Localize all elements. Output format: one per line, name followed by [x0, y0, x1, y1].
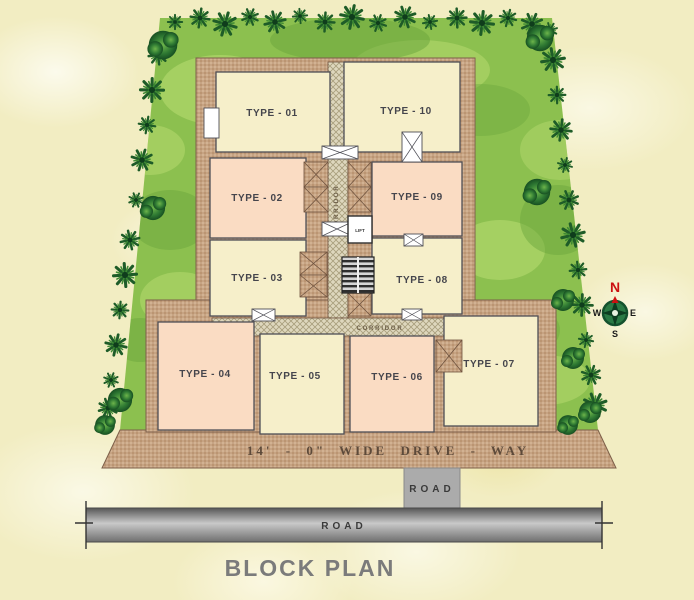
vent-icon — [402, 309, 422, 320]
road-stub-label: ROAD — [409, 484, 454, 495]
unit-type-08: TYPE - 08 — [372, 238, 462, 314]
shaft-icon — [300, 275, 327, 297]
vent-icon — [252, 309, 275, 321]
compass-hub — [612, 310, 618, 316]
palm-tree-icon — [292, 8, 308, 24]
unit-type-09: TYPE - 09 — [372, 162, 462, 236]
horizontal-corridor-label: CORRIDOR — [356, 326, 403, 332]
compass-east-label: E — [630, 308, 636, 318]
compass-rose: N W E S — [593, 279, 636, 339]
unit-type-04: TYPE - 04 — [158, 322, 254, 430]
vent-icon — [404, 234, 423, 246]
compass-north-label: N — [610, 279, 620, 295]
palm-tree-icon — [101, 370, 120, 389]
page-title: BLOCK PLAN — [225, 555, 396, 581]
shaft-icon — [436, 340, 462, 372]
shaft-icon — [300, 252, 327, 275]
svg-text:TYPE - 09: TYPE - 09 — [391, 192, 443, 203]
svg-text:TYPE - 03: TYPE - 03 — [231, 273, 283, 284]
palm-tree-icon — [140, 78, 164, 102]
palm-tree-icon — [113, 263, 138, 288]
site-plan-drawing: 14' - 0" WIDE DRIVE - WAY CORRIDOR CORRI… — [0, 0, 694, 600]
unit-type-01: TYPE - 01 — [216, 72, 330, 152]
block-plan: 14' - 0" WIDE DRIVE - WAY CORRIDOR CORRI… — [0, 0, 694, 600]
shaft-icon — [348, 187, 371, 212]
unit-type-03: TYPE - 03 — [210, 240, 306, 316]
driveway: 14' - 0" WIDE DRIVE - WAY — [102, 430, 616, 468]
vent-icon — [402, 132, 422, 162]
svg-text:TYPE - 07: TYPE - 07 — [463, 359, 515, 370]
unit-type-05: TYPE - 05 — [260, 334, 344, 434]
shaft-icon — [348, 162, 371, 187]
svg-text:TYPE - 06: TYPE - 06 — [371, 372, 423, 383]
driveway-label: 14' - 0" WIDE DRIVE - WAY — [247, 443, 529, 458]
staircase — [342, 257, 374, 293]
lift-label: LIFT — [355, 228, 365, 233]
main-road-label: ROAD — [321, 521, 366, 532]
svg-text:TYPE - 05: TYPE - 05 — [269, 371, 321, 382]
roads: ROAD ROAD — [75, 468, 613, 549]
bush-icon — [94, 415, 116, 435]
svg-text:TYPE - 10: TYPE - 10 — [380, 106, 432, 117]
svg-text:TYPE - 02: TYPE - 02 — [231, 193, 283, 204]
shaft-icon — [304, 187, 328, 212]
compass-north-pointer-icon — [612, 296, 619, 303]
shaft-icon — [348, 293, 371, 316]
shaft-icon — [304, 162, 328, 187]
svg-text:TYPE - 01: TYPE - 01 — [246, 108, 298, 119]
compass-west-label: W — [593, 308, 602, 318]
vent-icon — [322, 146, 358, 159]
svg-text:TYPE - 04: TYPE - 04 — [179, 369, 231, 380]
palm-tree-icon — [168, 15, 183, 30]
unit-type-02: TYPE - 02 — [210, 158, 306, 238]
compass-south-label: S — [612, 329, 618, 339]
door-opening — [204, 108, 219, 138]
unit-type-06: TYPE - 06 — [350, 336, 434, 432]
palm-tree-icon — [103, 332, 128, 357]
palm-tree-icon — [108, 298, 132, 322]
svg-text:TYPE - 08: TYPE - 08 — [396, 275, 448, 286]
